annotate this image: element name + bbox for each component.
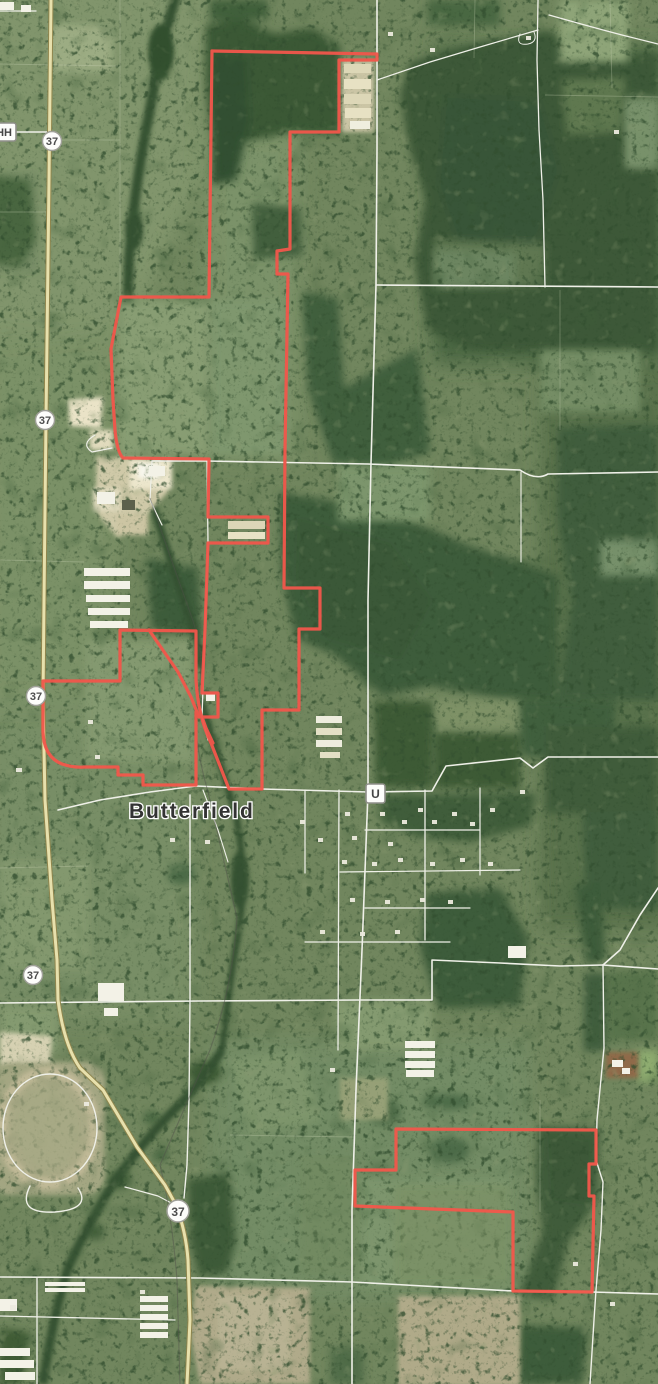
svg-text:37: 37	[39, 415, 51, 427]
svg-text:37: 37	[27, 970, 39, 982]
svg-text:U: U	[371, 787, 380, 801]
svg-text:37: 37	[171, 1205, 185, 1219]
svg-text:37: 37	[30, 691, 42, 703]
svg-text:HH: HH	[0, 127, 12, 139]
svg-text:37: 37	[46, 136, 58, 148]
